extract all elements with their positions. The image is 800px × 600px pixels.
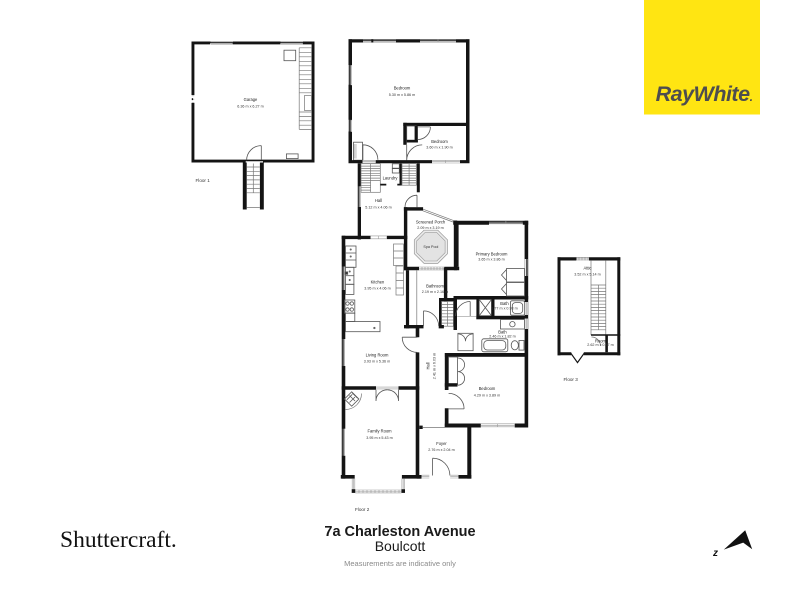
svg-text:Boulcott: Boulcott [375, 538, 426, 554]
svg-text:2.09 m x 3.19 m: 2.09 m x 3.19 m [417, 226, 443, 230]
svg-text:3.65 m x 3.86 m: 3.65 m x 3.86 m [478, 258, 504, 262]
svg-text:5.12 m x 4.06 m: 5.12 m x 4.06 m [365, 206, 391, 210]
svg-text:Bedroom: Bedroom [479, 386, 496, 391]
svg-text:2.76 m x 2.04 m: 2.76 m x 2.04 m [428, 448, 454, 452]
svg-text:3.95 m x 4.06 m: 3.95 m x 4.06 m [364, 287, 390, 291]
svg-text:Family Room: Family Room [367, 428, 392, 433]
svg-text:3.95 m x 5.43 m: 3.95 m x 5.43 m [366, 436, 392, 440]
svg-text:3.52 m x 5.14 m: 3.52 m x 5.14 m [574, 273, 600, 277]
svg-text:Shuttercraft.: Shuttercraft. [60, 527, 177, 553]
svg-text:2.19 m x 2.16 m: 2.19 m x 2.16 m [422, 290, 448, 294]
svg-text:3.60 m x 1.90 m: 3.60 m x 1.90 m [426, 145, 452, 149]
svg-text:Floor 3: Floor 3 [564, 377, 579, 382]
svg-text:Floor 1: Floor 1 [196, 178, 211, 183]
svg-text:Measurements are indicative on: Measurements are indicative only [344, 559, 456, 568]
svg-text:3.93 m x 5.36 m: 3.93 m x 5.36 m [364, 360, 390, 364]
svg-text:Foyer: Foyer [436, 441, 447, 446]
svg-text:RayWhite.: RayWhite. [656, 82, 753, 106]
svg-text:Laundry: Laundry [383, 176, 399, 181]
svg-text:Bath: Bath [500, 301, 509, 306]
svg-text:Living Room: Living Room [366, 352, 389, 357]
svg-text:Bathroom: Bathroom [426, 284, 444, 289]
svg-text:5.30 m x 5.86 m: 5.30 m x 5.86 m [389, 93, 415, 97]
svg-text:Primary Bedroom: Primary Bedroom [476, 252, 508, 257]
svg-text:Garage: Garage [244, 97, 258, 102]
svg-text:Hall: Hall [375, 198, 382, 203]
svg-text:Spa Pool: Spa Pool [423, 245, 438, 249]
svg-text:4.29 m x 3.89 m: 4.29 m x 3.89 m [474, 393, 500, 397]
svg-text:Hall: Hall [426, 362, 431, 369]
svg-text:6.36 m x 6.27 m: 6.36 m x 6.27 m [237, 105, 263, 109]
svg-text:Floor 2: Floor 2 [355, 507, 370, 512]
svg-text:2.41 m x 6.03 m: 2.41 m x 6.03 m [433, 353, 437, 379]
svg-text:Attic: Attic [584, 265, 592, 270]
svg-text:Bedroom: Bedroom [431, 139, 448, 144]
svg-text:Screened Porch: Screened Porch [416, 220, 446, 225]
svg-text:Kitchen: Kitchen [371, 279, 385, 284]
svg-text:2.62 m x 0.97 m: 2.62 m x 0.97 m [587, 343, 613, 347]
svg-text:1.77 m x 0.93 m: 1.77 m x 0.93 m [491, 306, 517, 310]
svg-text:Bedroom: Bedroom [394, 86, 411, 91]
svg-text:z: z [712, 548, 718, 559]
svg-text:2.46 m x 1.82 m: 2.46 m x 1.82 m [489, 335, 515, 339]
